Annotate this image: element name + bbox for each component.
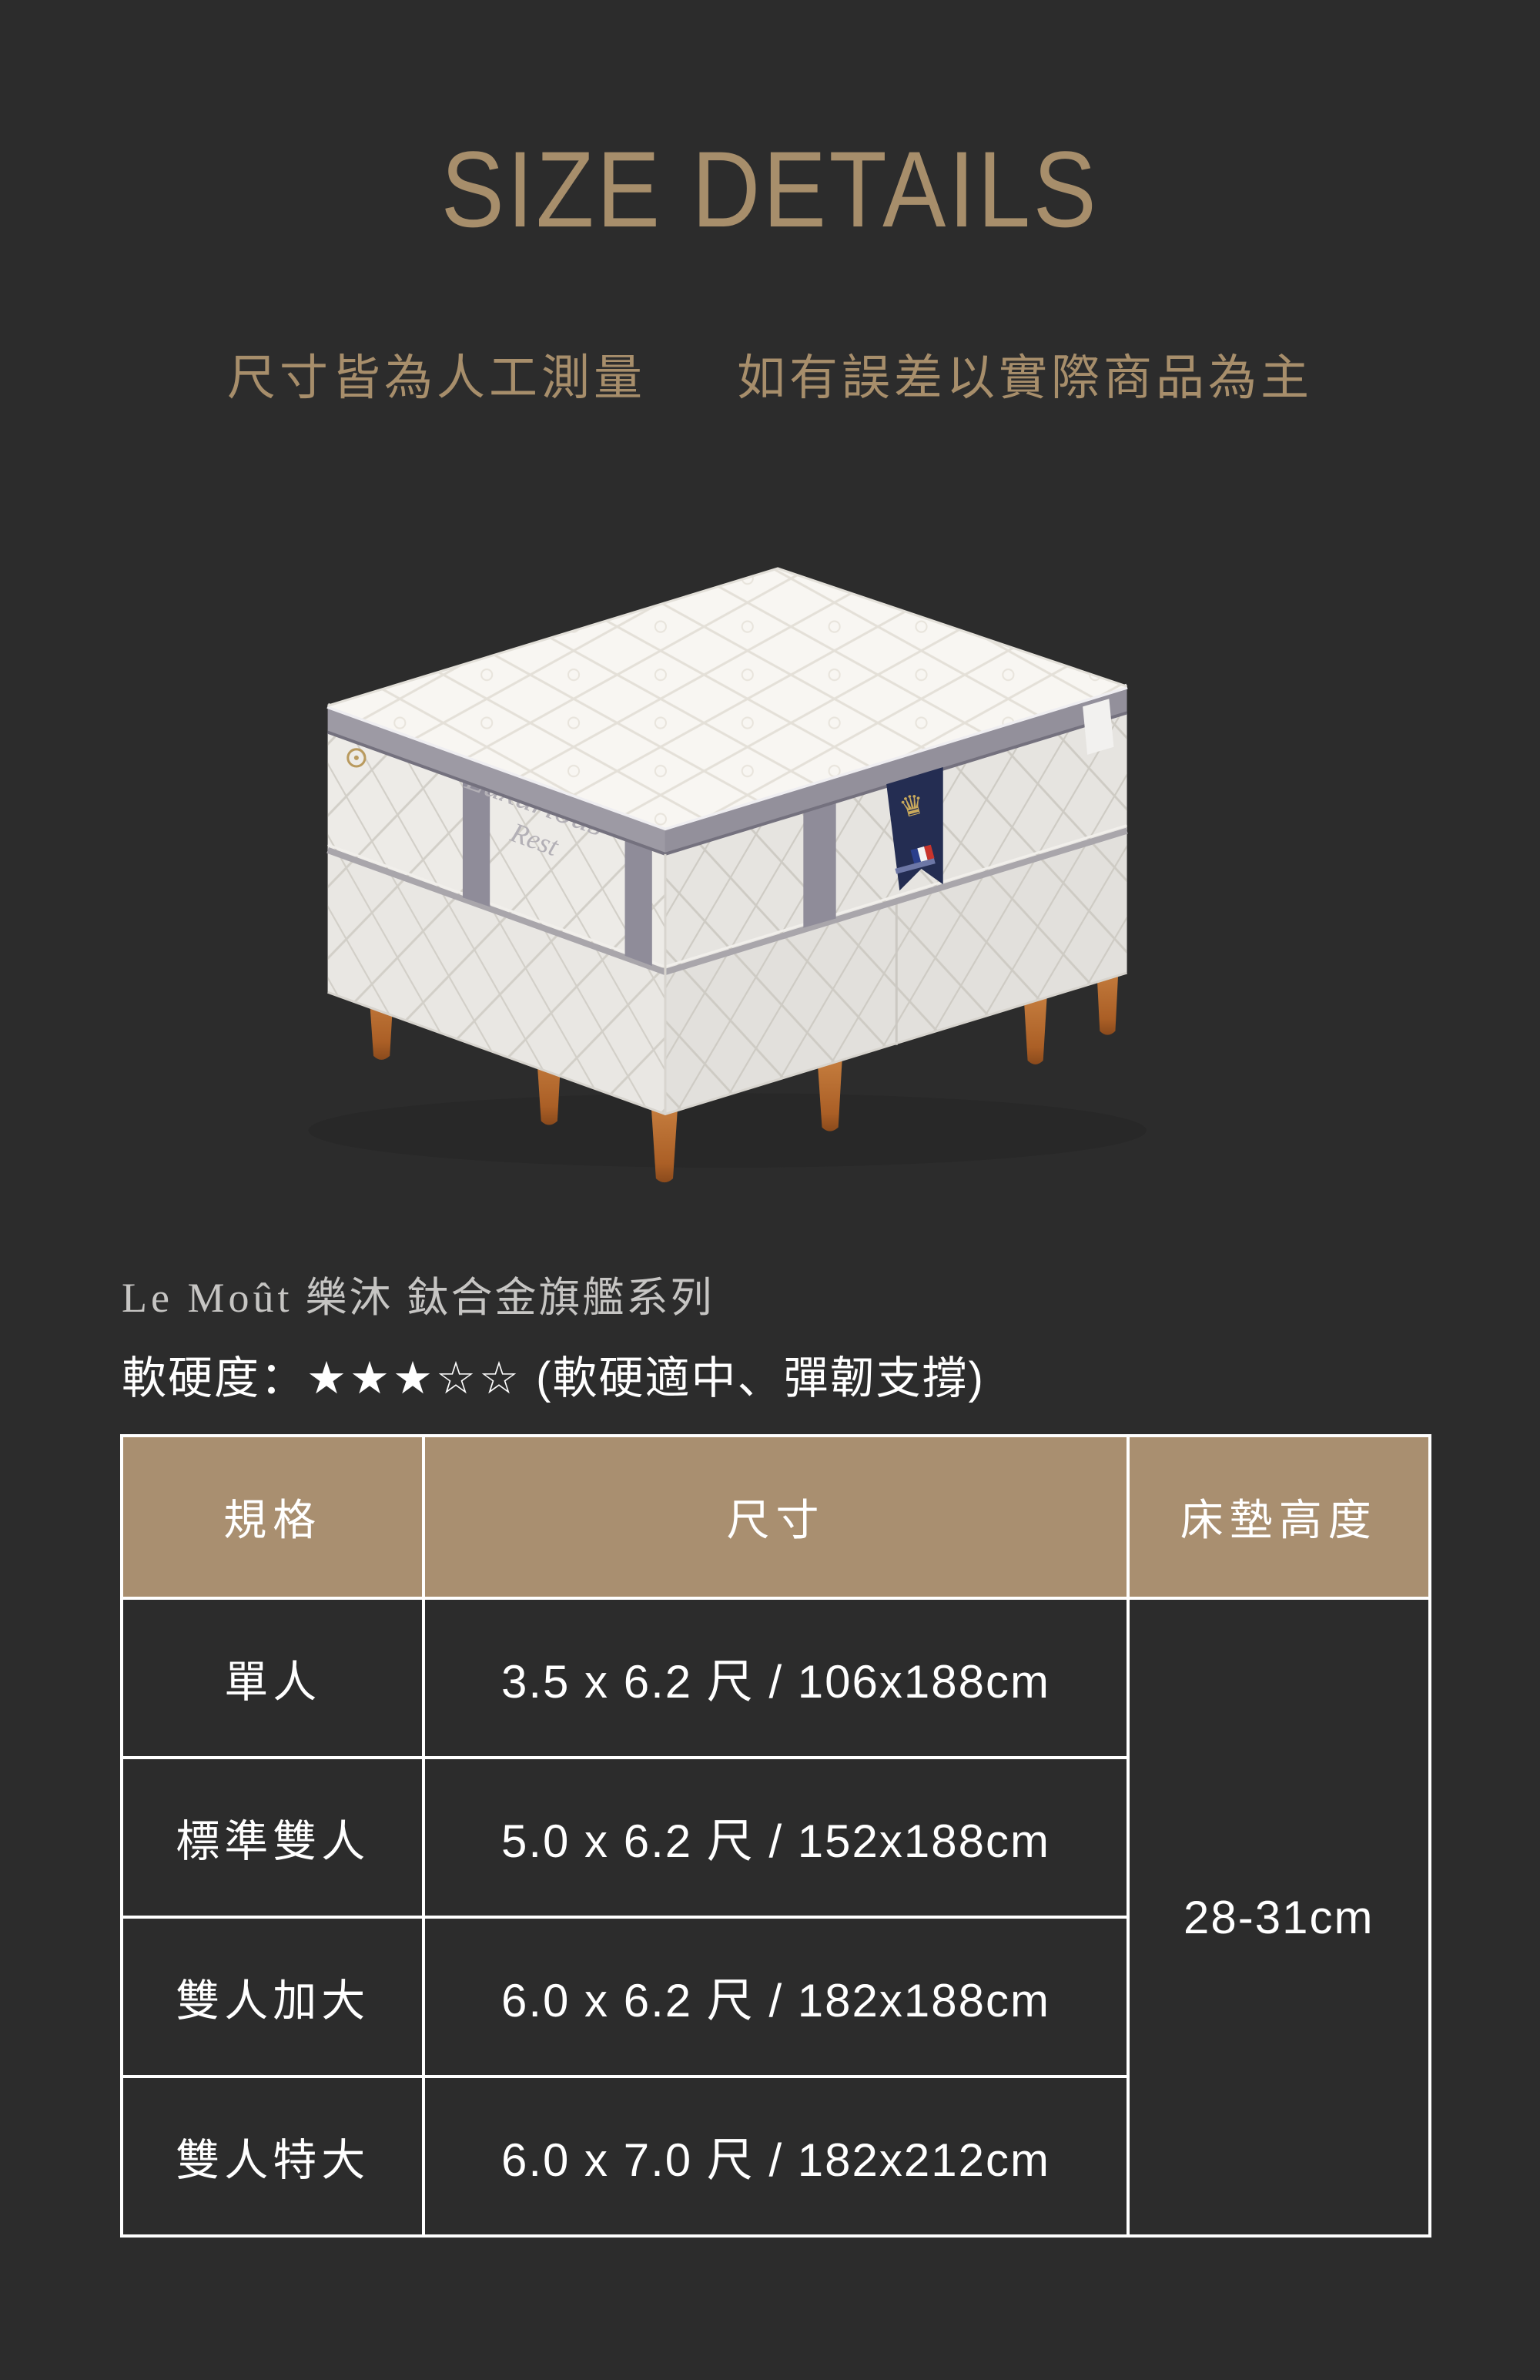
bed-leg: [651, 1107, 678, 1182]
header-height: 床墊高度: [1128, 1436, 1430, 1598]
bed-leg: [1024, 995, 1047, 1064]
firmness-note: (軟硬適中、彈韌支撐): [536, 1353, 985, 1403]
page-subtitle: 尺寸皆為人工測量 如有誤差以實際商品為主: [0, 339, 1540, 409]
size-table: 規格 尺寸 床墊高度 單人 3.5 x 6.2 尺 / 106x188cm 28…: [120, 1434, 1431, 2236]
firmness-stars: ★★★☆☆: [306, 1353, 522, 1403]
spec-queen: 雙人加大: [122, 1917, 423, 2077]
size-queen: 6.0 x 6.2 尺 / 182x188cm: [423, 1917, 1127, 2077]
spec-single: 單人: [122, 1598, 423, 1758]
size-standard-double: 5.0 x 6.2 尺 / 152x188cm: [423, 1758, 1127, 1917]
size-king: 6.0 x 7.0 尺 / 182x212cm: [423, 2077, 1127, 2236]
table-row: 單人 3.5 x 6.2 尺 / 106x188cm 28-31cm: [122, 1598, 1430, 1758]
firmness-line: 軟硬度：★★★☆☆ (軟硬適中、彈韌支撐): [122, 1342, 985, 1406]
firmness-label: 軟硬度：: [122, 1353, 306, 1403]
series-name-latin: Le Moût: [122, 1275, 293, 1321]
mattress-illustration: Luxurious Rest: [269, 553, 1270, 1185]
subtitle-left: 尺寸皆為人工測量: [227, 339, 646, 409]
subtitle-right: 如有誤差以實際商品為主: [737, 339, 1313, 409]
series-name-cjk: 樂沐 鈦合金旗艦系列: [305, 1275, 714, 1321]
bed-shadow: [308, 1093, 1146, 1168]
size-details-page: SIZE DETAILS 尺寸皆為人工測量 如有誤差以實際商品為主: [0, 0, 1540, 2380]
care-label: [1083, 699, 1113, 755]
header-size: 尺寸: [423, 1436, 1127, 1598]
size-single: 3.5 x 6.2 尺 / 106x188cm: [423, 1598, 1127, 1758]
header-spec: 規格: [122, 1436, 423, 1598]
page-title: SIZE DETAILS: [92, 132, 1448, 246]
product-image: Luxurious Rest: [269, 553, 1270, 1185]
series-title: Le Moût樂沐 鈦合金旗艦系列: [122, 1263, 715, 1324]
spec-king: 雙人特大: [122, 2077, 423, 2236]
mattress-height-value: 28-31cm: [1128, 1598, 1430, 2236]
table-header-row: 規格 尺寸 床墊高度: [122, 1436, 1430, 1598]
spec-standard-double: 標準雙人: [122, 1758, 423, 1917]
